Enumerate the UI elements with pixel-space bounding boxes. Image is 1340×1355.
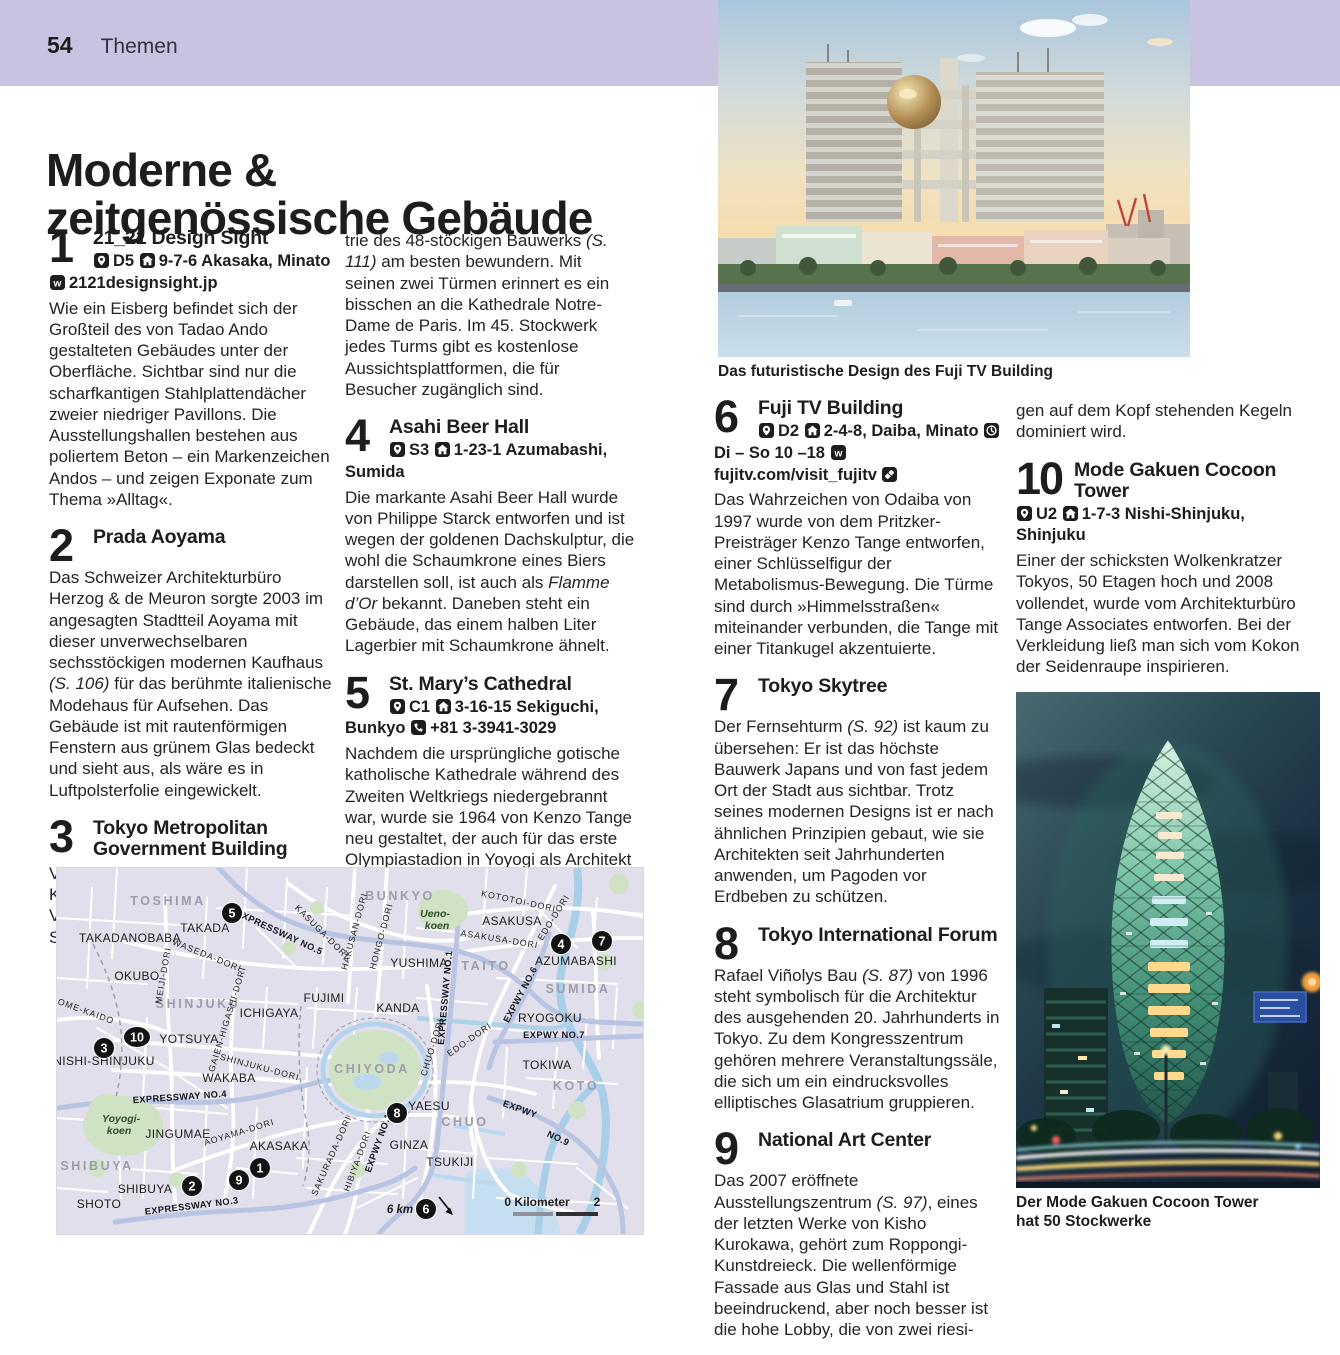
entry-number: 7 xyxy=(714,674,758,713)
map-label: SHOTO xyxy=(77,1197,121,1211)
entry-body: Wie ein Eisberg befindet sich der Großte… xyxy=(49,298,333,511)
grid-reference: D5 xyxy=(113,252,134,270)
website: fujitv.com/visit_fujitv xyxy=(714,466,877,484)
map-label: TAKADA xyxy=(180,921,230,935)
grid-reference: D2 xyxy=(778,422,799,440)
clock-icon xyxy=(984,423,999,438)
map-label: YAESU xyxy=(408,1099,450,1113)
entry-number: 2 xyxy=(49,525,93,564)
svg-text:8: 8 xyxy=(394,1107,401,1121)
page-number: 54 xyxy=(47,32,73,59)
entry-title: 21_21 Design Sight xyxy=(93,226,333,249)
entry-info: C1 3-16-15 Sekiguchi, Bunkyo +81 3-3941-… xyxy=(345,697,635,741)
svg-text:6: 6 xyxy=(423,1203,430,1217)
house-icon xyxy=(436,699,451,714)
map-label: TOKIWA xyxy=(522,1058,571,1072)
map-label: SHIBUYA xyxy=(118,1182,173,1196)
map-label: TAITO xyxy=(461,959,510,973)
map-label: KANDA xyxy=(376,1001,419,1015)
entry-prada-aoyama: 2 Prada Aoyama Das Schweizer Architektur… xyxy=(49,525,333,801)
text-column-2: trie des 48-stöckigen Bauwerks (S. 111) … xyxy=(345,230,635,907)
svg-text:9: 9 xyxy=(236,1174,243,1188)
opening-hours: Di – So 10 –18 xyxy=(714,444,825,462)
svg-text:7: 7 xyxy=(599,935,606,949)
svg-text:2: 2 xyxy=(189,1180,196,1194)
address: 9-7-6 Akasaka, Minato xyxy=(159,252,331,270)
entry-body: Rafael Viñolys Bau (S. 87) von 1996 steh… xyxy=(714,965,1004,1114)
map-label: CHIYODA xyxy=(334,1062,410,1076)
map-label: 6 km xyxy=(387,1204,413,1216)
map-label: 0 Kilometer xyxy=(504,1195,570,1209)
map-label: SHIBUYA xyxy=(60,1159,133,1173)
map-label: BUNKYO xyxy=(365,889,435,903)
entry-title: Fuji TV Building xyxy=(758,396,1004,419)
map-label: AKASAKA xyxy=(250,1139,309,1153)
map-pin-icon xyxy=(94,253,109,268)
map-marker-7: 7 xyxy=(592,931,613,952)
entry-body: Der Fernsehturm (S. 92) ist kaum zu über… xyxy=(714,716,1004,907)
entry-body: Das 2007 eröffnete Ausstellungszentrum (… xyxy=(714,1170,1004,1340)
entry-tokyo-skytree: 7 Tokyo Skytree Der Fernsehturm (S. 92) … xyxy=(714,674,1004,907)
entry-title: Asahi Beer Hall xyxy=(389,415,635,438)
phone-number: +81 3-3941-3029 xyxy=(430,719,556,737)
entry-body: Das Wahrzeichen von Odaiba von 1997 wurd… xyxy=(714,489,1004,659)
map-marker-10: 10 xyxy=(124,1027,151,1048)
house-icon xyxy=(805,423,820,438)
entry-title: Tokyo Metropolitan Government Building xyxy=(93,816,333,860)
house-icon xyxy=(435,442,450,457)
entry-number: 3 xyxy=(49,816,93,855)
entry-number: 9 xyxy=(714,1128,758,1167)
entry-info: D2 2-4-8, Daiba, Minato Di – So 10 –18 f… xyxy=(714,421,1004,486)
svg-text:3: 3 xyxy=(101,1042,108,1056)
entry-asahi-beer-hall: 4 Asahi Beer Hall S3 1-23-1 Azumabashi, … xyxy=(345,415,635,657)
grid-reference: U2 xyxy=(1036,505,1057,523)
ticket-icon xyxy=(882,467,897,482)
svg-text:10: 10 xyxy=(130,1031,144,1045)
entry-mode-gakuen-cocoon-tower: 10 Mode Gakuen Cocoon Tower U2 1-7-3 Nis… xyxy=(1016,458,1316,678)
map-label: YOTSUYA xyxy=(159,1032,218,1046)
address: 2-4-8, Daiba, Minato xyxy=(824,422,979,440)
entry-title: Mode Gakuen Cocoon Tower xyxy=(1074,458,1316,502)
web-icon xyxy=(831,445,846,460)
svg-text:1: 1 xyxy=(257,1162,264,1176)
house-icon xyxy=(140,253,155,268)
map-label: JINGUMAE xyxy=(145,1127,210,1141)
entry-fuji-tv-building: 6 Fuji TV Building D2 2-4-8, Daiba, Mina… xyxy=(714,396,1004,659)
entry-national-art-center: 9 National Art Center Das 2007 eröffnete… xyxy=(714,1128,1004,1340)
map-marker-5: 5 xyxy=(222,903,243,924)
map-label: SUMIDA xyxy=(546,982,611,996)
map-label: koen xyxy=(425,920,450,932)
map-label: RYOGOKU xyxy=(518,1011,582,1025)
map-marker-3: 3 xyxy=(94,1038,115,1059)
map-pin-icon xyxy=(1017,506,1032,521)
text-column-4: gen auf dem Kopf stehenden Kegeln domini… xyxy=(1016,400,1316,693)
map-label: koen xyxy=(107,1125,132,1137)
map-label: EXPWY NO.7 xyxy=(523,1030,585,1040)
svg-text:4: 4 xyxy=(558,938,565,952)
entry-3-continuation: trie des 48-stöckigen Bauwerks (S. 111) … xyxy=(345,230,635,400)
phone-icon xyxy=(411,720,426,735)
map-label: OKUBO xyxy=(114,969,159,983)
entry-title: St. Mary’s Cathedral xyxy=(389,672,635,695)
web-icon xyxy=(50,275,65,290)
tokyo-map: TOSHIMABUNKYOSHINJUKUTAITOSUMIDACHIYODAS… xyxy=(57,868,643,1234)
map-label: TOSHIMA xyxy=(130,894,206,908)
fuji-tv-building-photo xyxy=(718,0,1190,357)
photo-caption-cocoon-tower: Der Mode Gakuen Cocoon Tower hat 50 Stoc… xyxy=(1016,1193,1278,1232)
entry-title: Tokyo International Forum xyxy=(758,923,1004,946)
map-label: GINZA xyxy=(390,1138,429,1152)
entry-title: Tokyo Skytree xyxy=(758,674,1004,697)
website: 2121designsight.jp xyxy=(69,274,218,292)
map-pin-icon xyxy=(390,699,405,714)
map-pin-icon xyxy=(390,442,405,457)
map-label: ASAKUSA xyxy=(482,914,542,928)
entry-tokyo-international-forum: 8 Tokyo International Forum Rafael Viñol… xyxy=(714,923,1004,1114)
entry-number: 10 xyxy=(1016,458,1074,497)
map-label: ICHIGAYA xyxy=(240,1006,299,1020)
entry-info: U2 1-7-3 Nishi-Shinjuku, Shinjuku xyxy=(1016,504,1316,548)
page-title-line1: Moderne & xyxy=(46,147,686,195)
map-marker-6: 6 xyxy=(416,1199,437,1220)
map-label: Ueno- xyxy=(420,908,450,920)
text-column-1: 1 21_21 Design Sight D5 9-7-6 Akasaka, M… xyxy=(49,226,333,963)
map-label: CHUO xyxy=(441,1115,488,1129)
map-marker-9: 9 xyxy=(229,1170,250,1191)
map-label: TSUKIJI xyxy=(426,1155,473,1169)
map-marker-1: 1 xyxy=(250,1158,271,1179)
map-label: AZUMABASHI xyxy=(535,954,617,968)
text-column-3: 6 Fuji TV Building D2 2-4-8, Daiba, Mina… xyxy=(714,396,1004,1355)
map-label: FUJIMI xyxy=(303,991,344,1005)
grid-reference: S3 xyxy=(409,441,429,459)
svg-text:5: 5 xyxy=(229,907,236,921)
entry-st-marys-cathedral: 5 St. Mary’s Cathedral C1 3-16-15 Sekigu… xyxy=(345,672,635,892)
entry-body: Einer der schicksten Wolkenkratzer Tokyo… xyxy=(1016,550,1316,678)
house-icon xyxy=(1063,506,1078,521)
map-label: WAKABA xyxy=(202,1071,255,1085)
map-marker-4: 4 xyxy=(551,934,572,955)
photo-caption-fuji-tv: Das futuristische Design des Fuji TV Bui… xyxy=(718,362,1188,381)
map-pin-icon xyxy=(759,423,774,438)
cocoon-tower-photo xyxy=(1016,692,1320,1188)
entry-title: Prada Aoyama xyxy=(93,525,333,548)
map-label: KOTO xyxy=(553,1079,599,1093)
entry-body: Das Schweizer Architekturbüro Herzog & d… xyxy=(49,567,333,801)
entry-21-21-design-sight: 1 21_21 Design Sight D5 9-7-6 Akasaka, M… xyxy=(49,226,333,510)
grid-reference: C1 xyxy=(409,698,430,716)
entry-info: S3 1-23-1 Azumabashi, Sumida xyxy=(345,440,635,484)
address: 1-23-1 Azumabashi, Sumida xyxy=(345,441,607,481)
entry-title: National Art Center xyxy=(758,1128,1004,1151)
map-marker-2: 2 xyxy=(182,1176,203,1197)
map-label: Yoyogi- xyxy=(102,1113,141,1125)
entry-9-continuation: gen auf dem Kopf stehenden Kegeln domini… xyxy=(1016,400,1316,443)
section-label: Themen xyxy=(101,35,178,59)
entry-body: Die markante Asahi Beer Hall wurde von P… xyxy=(345,487,635,657)
entry-number: 8 xyxy=(714,923,758,962)
map-label: TAKADANOBABA xyxy=(79,931,181,945)
map-label: 2 xyxy=(594,1195,601,1209)
map-label: YUSHIMA xyxy=(390,956,447,970)
map-marker-8: 8 xyxy=(387,1103,408,1124)
entry-info: D5 9-7-6 Akasaka, Minato 2121designsight… xyxy=(49,251,333,295)
